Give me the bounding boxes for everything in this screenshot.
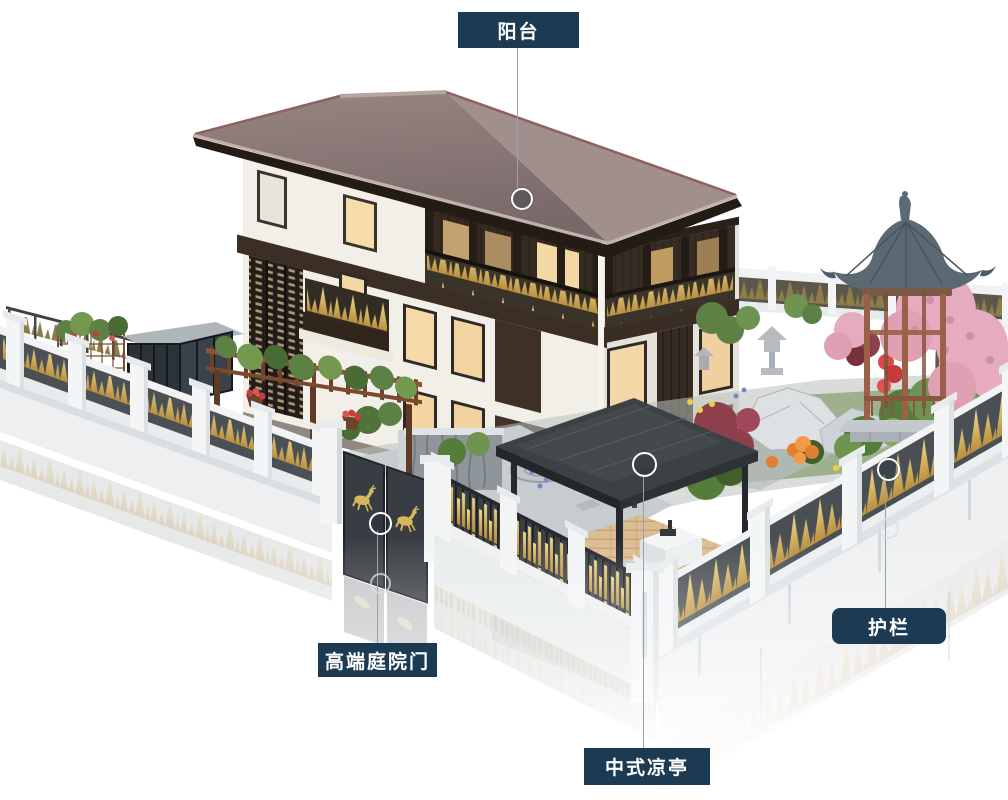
villa-illustration [0, 0, 1008, 800]
callout-courtyard-gate-marker-reflection [370, 573, 391, 594]
callout-pavilion-marker [632, 452, 657, 477]
reflection-fade [0, 536, 1008, 800]
callout-courtyard-gate-marker [369, 512, 392, 535]
callout-balcony-label: 阳台 [458, 12, 579, 48]
callout-pavilion-line [643, 474, 644, 748]
callout-balcony-marker [511, 188, 533, 210]
callout-guardrail-marker-reflection [878, 518, 899, 539]
callout-balcony-line [517, 48, 518, 189]
callout-guardrail-marker [877, 458, 900, 481]
annotated-villa-figure: 阳台 高端庭院门 中式凉亭 护栏 [0, 0, 1008, 800]
callout-pavilion-label: 中式凉亭 [584, 748, 710, 785]
callout-guardrail-line [885, 477, 886, 608]
callout-courtyard-gate-label: 高端庭院门 [318, 643, 437, 677]
callout-guardrail-label: 护栏 [832, 608, 946, 644]
